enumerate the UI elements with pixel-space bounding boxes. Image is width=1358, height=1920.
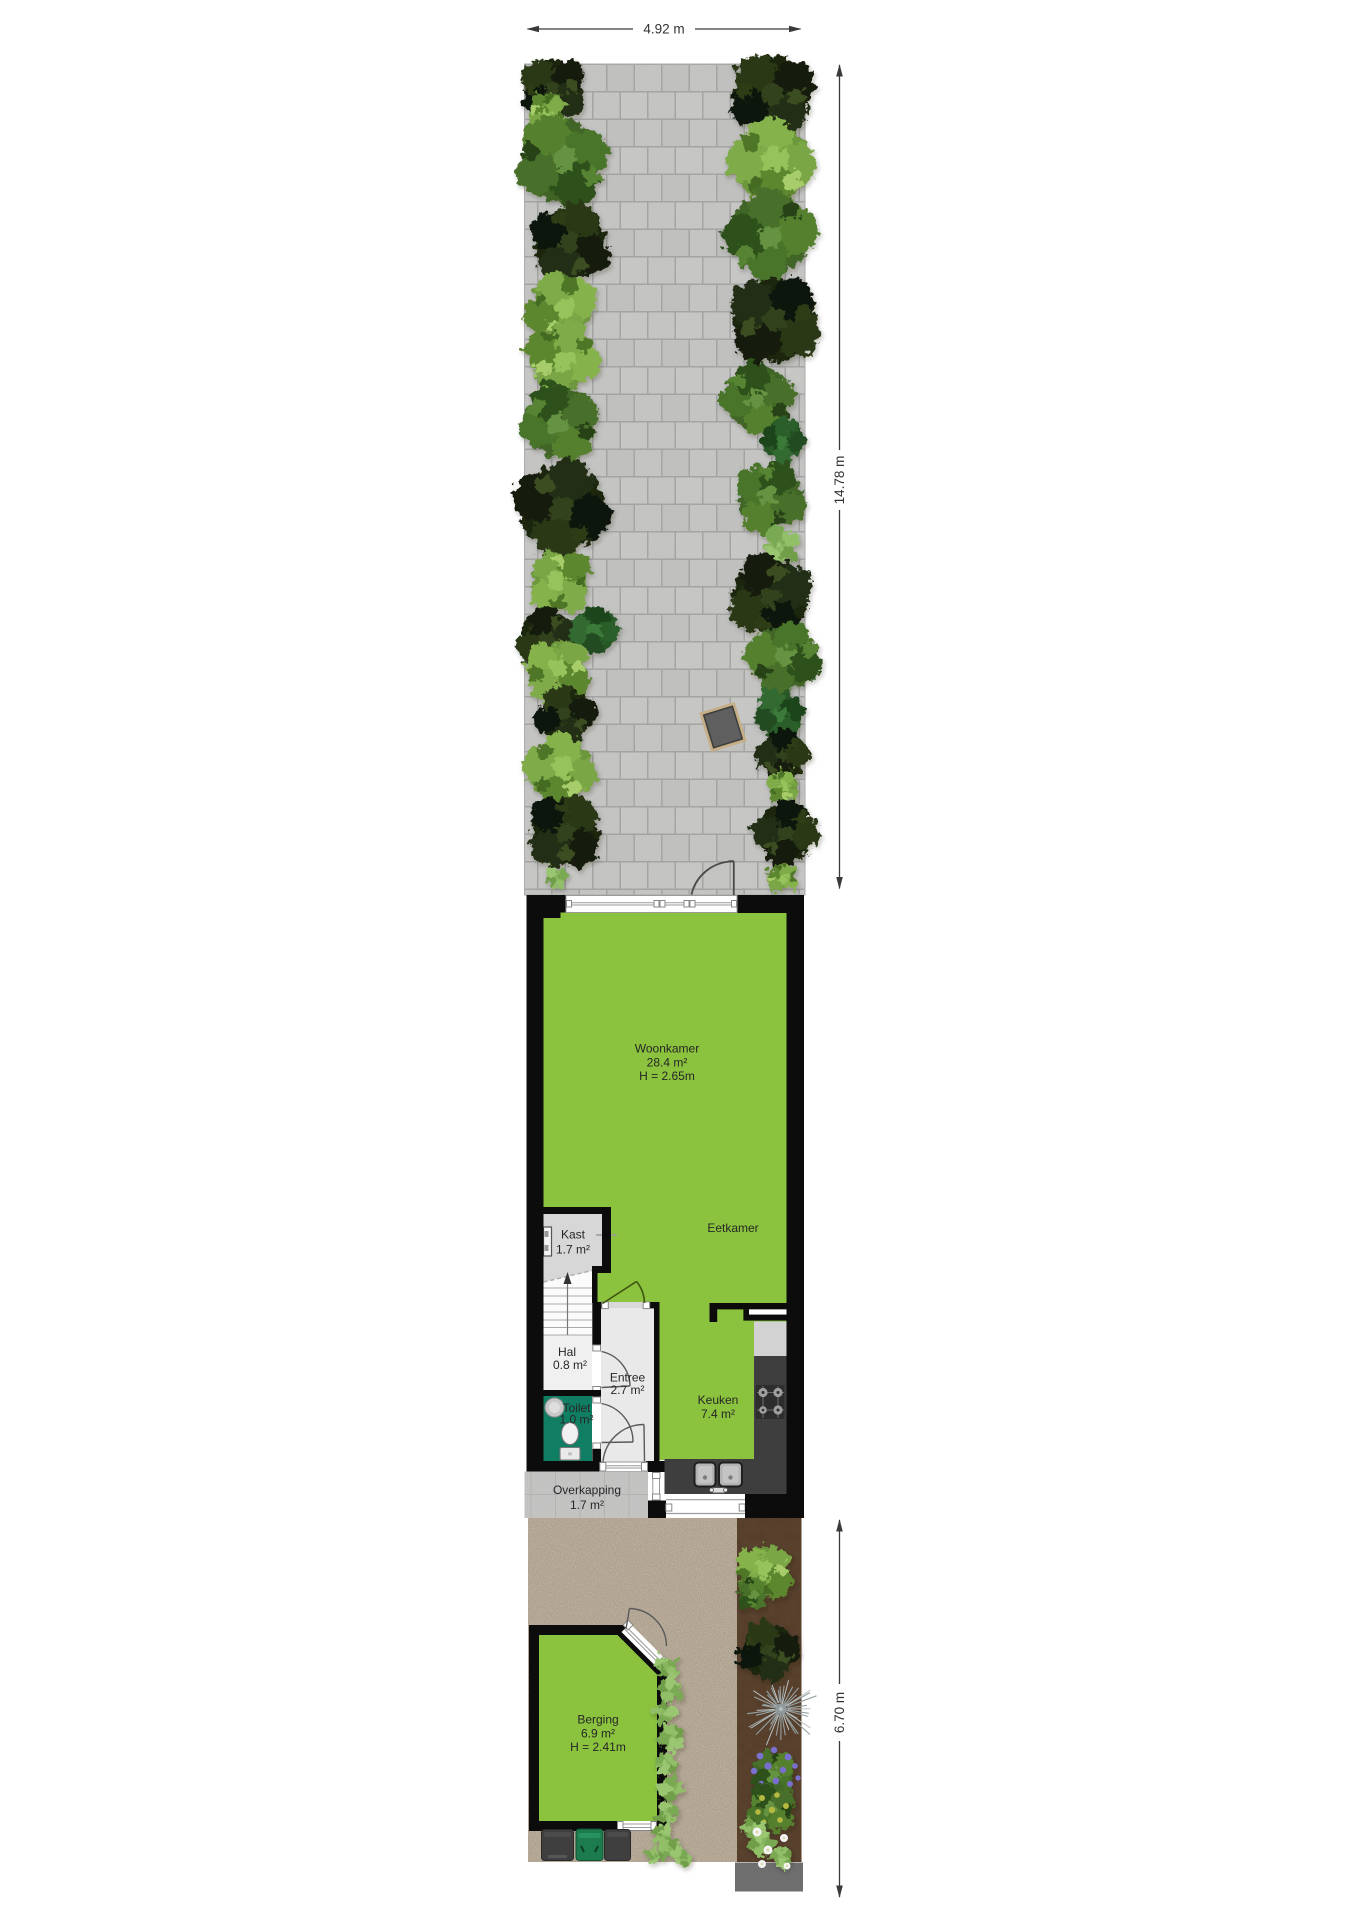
svg-text:H = 2.65m: H = 2.65m bbox=[639, 1069, 695, 1083]
svg-text:1.0 m²: 1.0 m² bbox=[559, 1413, 593, 1427]
svg-text:0.8 m²: 0.8 m² bbox=[553, 1358, 587, 1372]
svg-text:Woonkamer: Woonkamer bbox=[635, 1042, 699, 1056]
svg-text:14.78 m: 14.78 m bbox=[832, 456, 847, 505]
svg-text:1.7 m²: 1.7 m² bbox=[556, 1243, 590, 1257]
svg-text:7.4 m²: 7.4 m² bbox=[701, 1407, 735, 1421]
svg-text:Eetkamer: Eetkamer bbox=[707, 1221, 758, 1235]
svg-text:6.9 m²: 6.9 m² bbox=[581, 1727, 615, 1741]
svg-text:Overkapping: Overkapping bbox=[553, 1483, 621, 1497]
svg-text:Hal: Hal bbox=[558, 1345, 576, 1359]
svg-text:H = 2.41m: H = 2.41m bbox=[570, 1740, 626, 1754]
svg-text:6.70 m: 6.70 m bbox=[832, 1692, 847, 1733]
svg-text:Kast: Kast bbox=[561, 1228, 586, 1242]
svg-text:28.4 m²: 28.4 m² bbox=[647, 1056, 688, 1070]
svg-text:1.7 m²: 1.7 m² bbox=[570, 1498, 604, 1512]
svg-text:Berging: Berging bbox=[577, 1713, 618, 1727]
svg-text:4.92 m: 4.92 m bbox=[643, 22, 684, 37]
svg-text:Keuken: Keuken bbox=[698, 1393, 739, 1407]
svg-text:2.7 m²: 2.7 m² bbox=[610, 1383, 644, 1397]
